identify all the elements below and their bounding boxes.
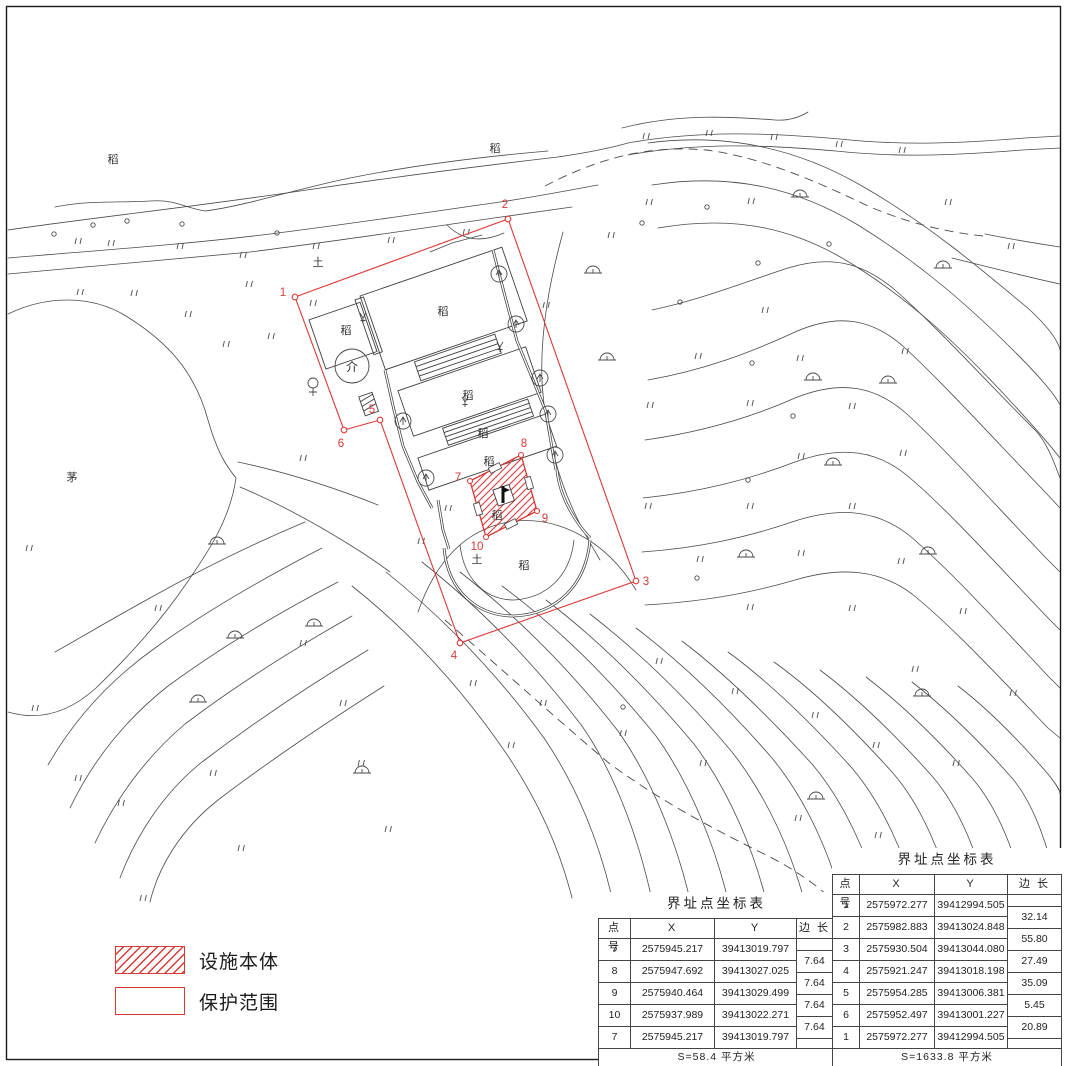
svg-text:1: 1: [280, 287, 286, 299]
dot-circle-icons: [52, 205, 831, 709]
svg-text:稻: 稻: [490, 142, 501, 155]
trail-paths: [445, 149, 983, 908]
svg-text:稻: 稻: [478, 427, 489, 440]
legend-item-protection: 保护范围: [115, 987, 279, 1015]
legend-item-facility: 设施本体: [115, 946, 279, 974]
svg-text:稻: 稻: [438, 305, 449, 318]
svg-text:土: 土: [313, 256, 324, 269]
svg-text:8: 8: [521, 438, 527, 450]
facility-coordinate-table: 界址点坐标表 点 号 X Y 边 长 72575945.21739413019.…: [598, 892, 835, 1066]
protection-label: 保护范围: [199, 988, 279, 1015]
facility-area: S=58.4 平方米: [599, 1048, 834, 1066]
protection-coordinate-table: 界址点坐标表 点 号 X Y 边 长 12575972.27739412994.…: [832, 848, 1062, 1066]
table-title: 界址点坐标表: [598, 892, 835, 918]
facility-hatch-swatch: [115, 946, 185, 974]
svg-text:3: 3: [643, 576, 649, 588]
svg-text:稻: 稻: [519, 559, 530, 572]
svg-text:稻: 稻: [341, 324, 352, 337]
independent-tree-icon: [308, 378, 318, 396]
facility-footprint: 7 8 9 10: [455, 438, 548, 553]
svg-text:9: 9: [542, 513, 548, 525]
svg-text:茅: 茅: [67, 471, 78, 484]
svg-text:稻: 稻: [484, 455, 495, 468]
svg-text:5: 5: [369, 404, 375, 416]
svg-text:稻: 稻: [108, 153, 119, 166]
svg-text:6: 6: [338, 438, 344, 450]
grave-icons: [189, 190, 952, 799]
table-title: 界址点坐标表: [832, 848, 1062, 874]
legend: 设施本体 保护范围: [115, 946, 279, 1028]
svg-text:4: 4: [451, 650, 458, 662]
protection-area: S=1633.8 平方米: [833, 1048, 1061, 1066]
svg-text:10: 10: [471, 541, 484, 553]
large-tree-glyph: 介: [346, 360, 358, 374]
protection-swatch: [115, 987, 185, 1015]
svg-text:2: 2: [502, 199, 508, 211]
svg-text:土: 土: [472, 553, 483, 566]
svg-text:稻: 稻: [463, 389, 474, 402]
cadastral-site-plan: 介 1 2 3 4 5 6 7 8 9 10 稻 稻 稻 稻 稻 稻: [0, 0, 1067, 1066]
facility-label: 设施本体: [199, 947, 279, 974]
svg-text:7: 7: [455, 472, 461, 484]
svg-text:稻: 稻: [492, 509, 503, 522]
